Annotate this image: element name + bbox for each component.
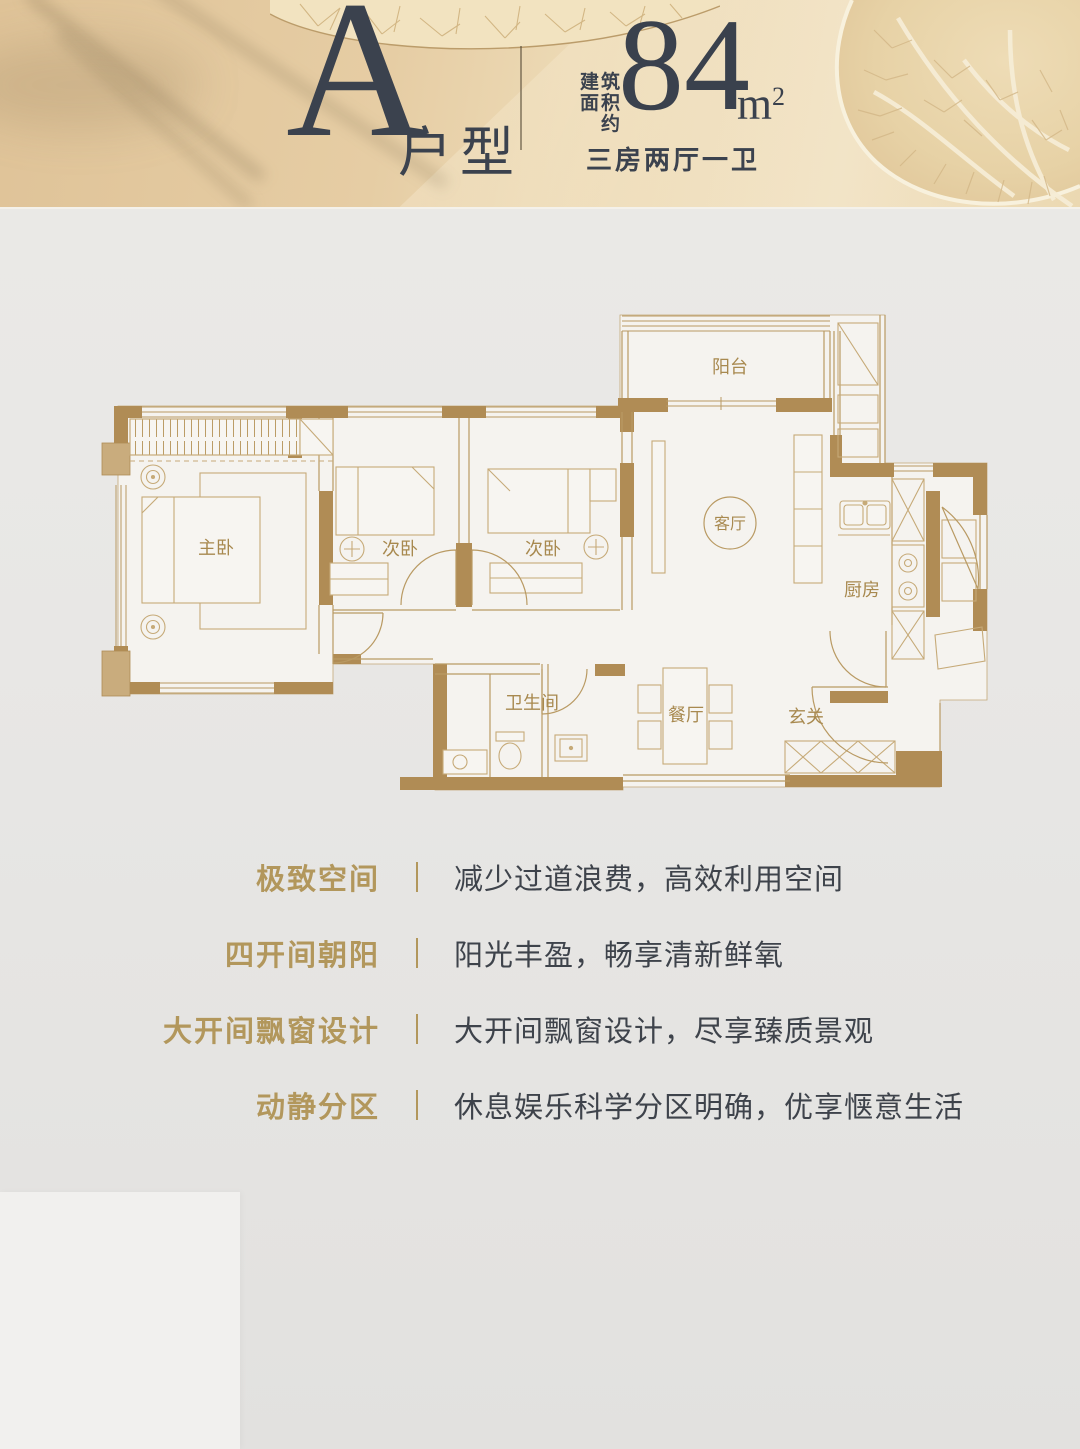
room-label-bedroom3: 次卧 <box>525 539 561 559</box>
feature-row: 极致空间 减少过道浪费，高效利用空间 <box>0 856 1080 886</box>
leaf-shadow-blob <box>0 40 200 130</box>
layout-summary: 三房两厅一卫 <box>586 140 760 177</box>
feature-row: 大开间飘窗设计 大开间飘窗设计，尽享臻质景观 <box>0 1008 1080 1038</box>
nightstand-icon <box>590 469 616 501</box>
room-label-balcony: 阳台 <box>712 357 748 377</box>
feature-divider <box>416 862 418 892</box>
toilet-icon <box>496 732 524 741</box>
feature-label: 大开间飘窗设计 <box>0 1008 380 1050</box>
feature-label: 极致空间 <box>0 856 380 898</box>
feature-divider <box>416 1090 418 1120</box>
bed-icon <box>488 469 590 533</box>
area-prefix-line: 建筑 <box>558 72 622 93</box>
feature-desc: 休息娱乐科学分区明确，优享惬意生活 <box>454 1084 1080 1126</box>
feature-divider <box>416 1014 418 1044</box>
area-value: 84 <box>618 0 750 137</box>
tv-cabinet-icon <box>652 441 665 573</box>
floorplan-flyer: A 户型 建筑 面积 约 84 m2 三房两厅一卫 <box>0 0 1080 1449</box>
feature-label: 四开间朝阳 <box>0 932 380 974</box>
feature-label: 动静分区 <box>0 1084 380 1126</box>
room-label-foyer: 玄关 <box>788 707 824 727</box>
area-prefix-line: 约 <box>558 114 622 135</box>
floor-plan: 阳台 客厅 主卧 次卧 次卧 厨房 卫生间 餐厅 玄关 <box>90 295 1000 810</box>
area-unit: m2 <box>737 78 785 130</box>
room-label-kitchen: 厨房 <box>844 580 880 600</box>
unit-type-label: 户型 <box>398 108 522 187</box>
room-label-dining: 餐厅 <box>668 705 704 725</box>
header-divider <box>520 46 522 150</box>
room-label-living: 客厅 <box>714 515 746 533</box>
area-prefix-line: 面积 <box>558 93 622 114</box>
feature-divider <box>416 938 418 968</box>
bath-counter-icon <box>443 750 487 774</box>
feature-desc: 减少过道浪费，高效利用空间 <box>454 856 1080 898</box>
room-label-master: 主卧 <box>198 538 234 558</box>
area-unit-base: m <box>737 79 772 129</box>
feature-desc: 大开间飘窗设计，尽享臻质景观 <box>454 1008 1080 1050</box>
feature-row: 动静分区 休息娱乐科学分区明确，优享惬意生活 <box>0 1084 1080 1114</box>
area-prefix: 建筑 面积 约 <box>558 72 622 135</box>
room-label-bedroom2: 次卧 <box>382 539 418 559</box>
feature-row: 四开间朝阳 阳光丰盈，畅享清新鲜氧 <box>0 932 1080 962</box>
room-label-bathroom: 卫生间 <box>505 693 559 713</box>
bed-icon <box>336 467 434 535</box>
skeleton-leaf-icon <box>814 0 1080 209</box>
header-banner: A 户型 建筑 面积 约 84 m2 三房两厅一卫 <box>0 0 1080 209</box>
bottom-left-panel <box>0 1192 240 1449</box>
area-unit-exponent: 2 <box>772 82 785 111</box>
feature-desc: 阳光丰盈，畅享清新鲜氧 <box>454 932 1080 974</box>
feature-list: 极致空间 减少过道浪费，高效利用空间 四开间朝阳 阳光丰盈，畅享清新鲜氧 大开间… <box>0 856 1080 1160</box>
